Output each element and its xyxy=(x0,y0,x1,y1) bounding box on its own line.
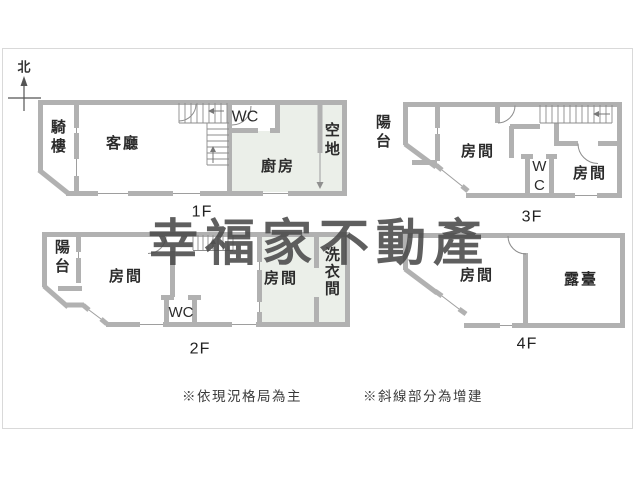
room-label-room-left-3f: 房間 xyxy=(461,144,495,160)
room-label-kitchen-1f: 廚房 xyxy=(261,159,295,175)
windows-4f xyxy=(442,296,512,326)
room-label-wc-2f: WC xyxy=(169,305,194,321)
floorplan-image: 北 騎樓 客廳 WC 廚房 空地 1F 陽台 房間 WC 房間 洗衣間 2F 陽… xyxy=(0,0,640,480)
stairs-1f xyxy=(179,103,229,165)
stairs-arrows-1f xyxy=(208,108,224,163)
door-arc-4f xyxy=(508,236,526,254)
room-label-wc-1f: WC xyxy=(232,110,259,127)
floor-label-2f: 2F xyxy=(190,342,211,359)
stairs-arrow-3f xyxy=(593,111,610,117)
room-label-balcony-3f: 陽台 xyxy=(374,114,390,152)
room-label-room-right-3f: 房間 xyxy=(573,166,607,182)
room-label-arcade-1f: 騎樓 xyxy=(49,119,65,157)
floor-plan-1f xyxy=(38,100,347,196)
north-arrow-icon xyxy=(8,76,41,111)
room-label-open-space-1f: 空地 xyxy=(323,122,339,160)
note-current-layout: ※依現況格局為主 xyxy=(182,385,302,405)
room-label-living-1f: 客廳 xyxy=(106,136,140,152)
room-label-wc-3f: WC xyxy=(531,158,547,196)
room-label-room-left-2f: 房間 xyxy=(109,269,143,285)
windows-3f xyxy=(438,128,598,196)
watermark-text: 幸福家不動產 xyxy=(148,203,490,275)
room-label-terrace-4f: 露臺 xyxy=(564,272,598,288)
note-shaded-addition: ※斜線部分為增建 xyxy=(363,385,483,405)
floor-label-3f: 3F xyxy=(522,210,543,227)
room-label-balcony-2f: 陽台 xyxy=(53,239,69,277)
north-label: 北 xyxy=(17,57,30,76)
floor-label-4f: 4F xyxy=(517,337,538,354)
